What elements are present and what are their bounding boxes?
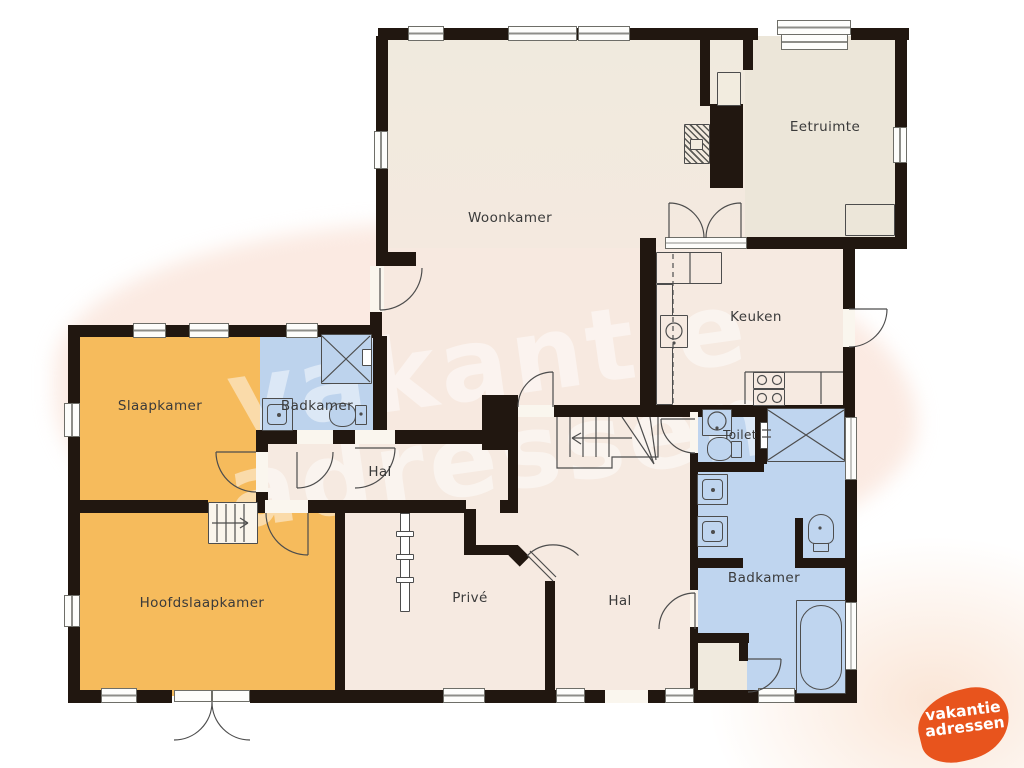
wall-segment [843,249,855,311]
window [408,26,444,41]
wall-segment [692,690,760,703]
door-gap [518,405,554,417]
door-gap [297,430,333,444]
wall-segment [373,336,387,436]
door-gap [370,266,384,312]
room-label-keuken: Keuken [730,309,782,325]
wall-segment [690,462,764,472]
room-label-badkamer-boven: Badkamer [281,398,353,414]
door-gap [690,412,698,453]
window [893,127,907,163]
window [374,131,388,169]
room-label-hal-beneden: Hal [608,593,631,609]
wall-segment [845,480,857,602]
wall-segment [508,448,518,513]
window [64,595,80,627]
wall-segment [895,36,907,129]
window [845,417,857,480]
room-label-badkamer-beneden: Badkamer [728,570,800,586]
french-door-leaf [174,690,212,702]
wall-segment [376,36,388,133]
window [758,688,795,703]
room-label-hoofdslaapkamer: Hoofdslaapkamer [140,595,265,611]
window [578,26,630,41]
folding-door-tick [396,554,414,560]
bay-window-sill [781,34,848,50]
door-gap [843,309,855,347]
window [556,688,585,703]
wall-segment [483,690,558,703]
room-label-slaapkamer: Slaapkamer [118,398,202,414]
room-label-hal-boven: Hal [368,464,391,480]
wall-segment [895,163,907,247]
room-label-woonkamer: Woonkamer [468,210,552,226]
window [64,403,80,437]
wall-segment [256,436,268,452]
wall-segment [376,167,388,254]
wall-segment [739,643,748,661]
door-gap [256,452,268,492]
toilet-tank [731,441,742,458]
counter [845,204,895,236]
wall-segment [743,237,907,249]
toilet-tank [355,405,367,425]
wall-segment [68,500,208,513]
wall-segment [795,558,850,568]
washbasin-bowl [702,479,723,500]
window [443,688,485,703]
door-gap [605,690,648,703]
bathtub-inner [800,605,842,690]
wall-segment [333,430,355,444]
kitchen-cabinet [656,252,722,284]
window [845,602,857,670]
toilet-base [813,543,829,552]
wall-segment [583,690,605,703]
wall-segment [545,581,555,693]
folding-door-tick [396,531,414,537]
wall-segment [308,500,466,513]
stove-icon [753,389,785,406]
wall-segment [135,690,172,703]
vakantieadressen-logo: vakantie adressen [912,686,1016,766]
cupboard [717,72,741,106]
window [665,688,694,703]
window [101,688,137,703]
wall-segment [795,518,803,562]
wall-segment [700,36,710,106]
french-door-leaf [212,690,250,702]
fireplace-inner [690,139,703,150]
folding-door [400,513,410,612]
wall-segment [250,690,445,703]
wall-segment [395,430,484,444]
chimney-block [710,104,743,188]
stairs-icon [208,502,258,544]
room-label-prive: Privé [452,590,488,606]
window [189,323,229,338]
wall-segment [697,558,743,568]
folding-door-tick [396,577,414,583]
door-gap [355,430,395,444]
room-label-eetruimte: Eetruimte [790,119,860,135]
wall-segment [697,633,749,643]
double-door-sill [665,237,747,249]
window [133,323,166,338]
room-label-toilet: Toilet [723,428,757,442]
floor-slaapkamer [73,330,263,506]
toilet-icon [808,514,834,544]
door-gap [690,590,698,627]
wall-segment [335,505,345,697]
wall-segment [68,690,103,703]
wall-segment [376,252,416,266]
wall-segment [640,238,656,417]
washbasin-bowl [702,521,723,542]
door-gap [265,500,308,513]
shower-icon [767,408,845,462]
stove-icon [753,372,785,389]
wall-segment [482,395,518,450]
bay-window [777,20,851,35]
wall-segment [743,36,753,70]
shower-fixture [362,349,372,366]
window [508,26,577,41]
window [286,323,318,338]
kitchen-sink-icon [660,315,688,348]
floor-plan: vakantie adressen [0,0,1024,768]
